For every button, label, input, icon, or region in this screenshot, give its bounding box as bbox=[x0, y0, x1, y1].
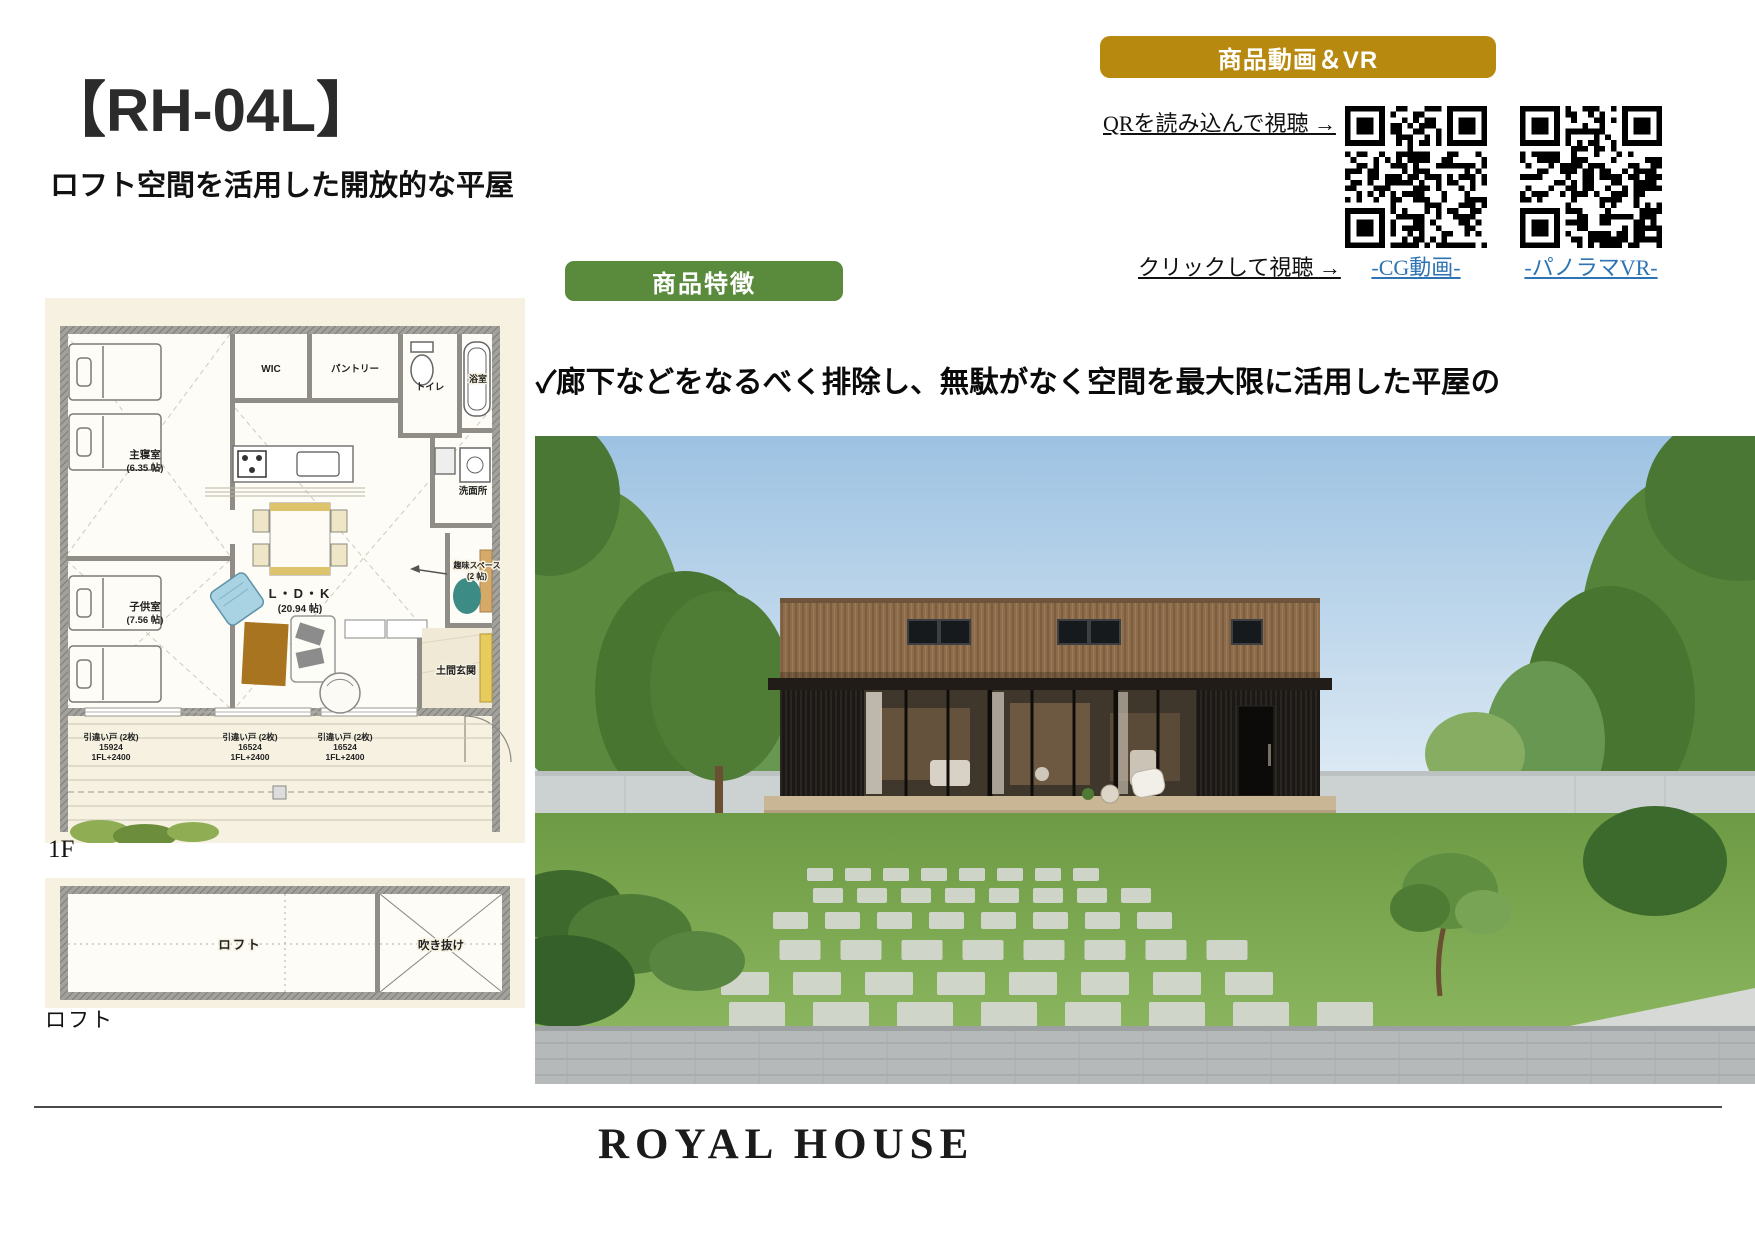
room-label-wic: WIC bbox=[261, 364, 280, 375]
house-exterior-photo bbox=[535, 436, 1755, 1084]
page-title: 【RH-04L】 bbox=[46, 62, 376, 149]
floor-plan-1f: 主寝室 (6.35 帖) WIC パントリー トイレ 浴室 洗面所 L・D・K … bbox=[45, 298, 525, 843]
room-size-kids: (7.56 帖) bbox=[127, 614, 164, 626]
feature-line: ✓廊下などをなるべく排除し、無駄がなく空間を最大限に活用した平屋の bbox=[536, 366, 1751, 401]
deck bbox=[764, 796, 1336, 810]
plan-sliding-doors bbox=[85, 708, 417, 716]
room-label-bath: 浴室 bbox=[469, 373, 487, 384]
front-pavement bbox=[535, 1029, 1755, 1084]
qr-read-instruction: QRを読み込んで視聴 → bbox=[1103, 106, 1336, 138]
panorama-vr-link[interactable]: -パノラマVR- bbox=[1508, 250, 1674, 282]
loft-label: ロフト bbox=[218, 938, 262, 952]
svg-text:16524: 16524 bbox=[333, 742, 357, 752]
room-label-kids: 子供室 bbox=[129, 600, 161, 613]
house-fascia bbox=[768, 678, 1332, 690]
click-watch-instruction: クリックして視聴 → bbox=[1138, 250, 1341, 282]
slat-wall-left bbox=[780, 690, 864, 796]
video-vr-banner: 商品動画＆VR bbox=[1100, 36, 1496, 78]
room-label-toilet: トイレ bbox=[416, 382, 445, 393]
svg-text:引違い戸 (2枚): 引違い戸 (2枚) bbox=[83, 732, 138, 742]
product-sheet: 【RH-04L】 ロフト空間を活用した開放的な平屋 商品動画＆VR QRを読み込… bbox=[0, 0, 1755, 1240]
void-label: 吹き抜け bbox=[418, 938, 464, 952]
svg-text:引違い戸 (2枚): 引違い戸 (2枚) bbox=[317, 732, 372, 742]
svg-text:引違い戸 (2枚): 引違い戸 (2枚) bbox=[222, 732, 277, 742]
caption-1f: 1F bbox=[48, 836, 74, 864]
room-label-wash: 洗面所 bbox=[459, 485, 488, 497]
svg-text:1FL+2400: 1FL+2400 bbox=[92, 752, 131, 762]
room-size-ldk: (20.94 帖) bbox=[278, 602, 322, 615]
house bbox=[764, 598, 1336, 824]
qr-code-cg-video bbox=[1345, 106, 1487, 248]
qr-code-panorama-vr bbox=[1520, 106, 1662, 248]
royal-house-logo: ROYAL HOUSE bbox=[598, 1120, 974, 1169]
svg-text:16524: 16524 bbox=[238, 742, 262, 752]
page-subtitle: ロフト空間を活用した開放的な平屋 bbox=[50, 162, 514, 204]
deck-post-symbol bbox=[273, 786, 286, 799]
room-label-master: 主寝室 bbox=[129, 448, 161, 461]
room-label-ldk: L・D・K bbox=[269, 586, 332, 601]
footer-divider bbox=[34, 1106, 1722, 1108]
room-size-hobby: (2 帖) bbox=[467, 571, 487, 581]
cg-video-link[interactable]: -CG動画- bbox=[1338, 250, 1494, 282]
floor-plan-loft: ロフト 吹き抜け bbox=[45, 878, 525, 1008]
room-label-pantry: パントリー bbox=[331, 363, 379, 375]
room-label-doma: 土間玄関 bbox=[436, 664, 476, 677]
svg-text:15924: 15924 bbox=[99, 742, 123, 752]
room-label-hobby: 趣味スペース bbox=[452, 560, 500, 570]
caption-loft: ロフト bbox=[45, 1004, 114, 1034]
svg-text:1FL+2400: 1FL+2400 bbox=[326, 752, 365, 762]
features-banner: 商品特徴 bbox=[565, 261, 843, 301]
room-size-master: (6.35 帖) bbox=[127, 462, 164, 474]
svg-text:1FL+2400: 1FL+2400 bbox=[231, 752, 270, 762]
